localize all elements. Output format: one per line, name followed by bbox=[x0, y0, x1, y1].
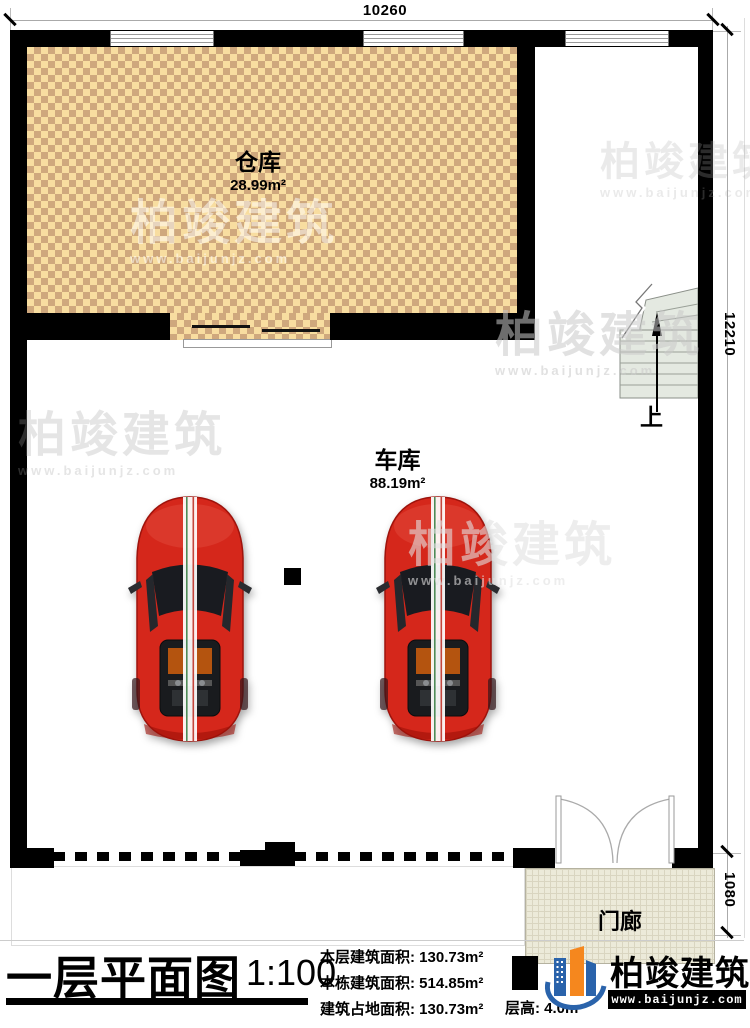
frame-line bbox=[744, 18, 745, 938]
door-sill bbox=[183, 339, 332, 348]
watermark: 柏竣建筑www.baijunjz.com bbox=[18, 412, 226, 477]
warehouse-right-wall bbox=[517, 47, 535, 340]
porch-side-wall bbox=[513, 848, 555, 868]
right-dimension-line bbox=[727, 26, 728, 938]
title-block: 一层平面图 1:100 本层建筑面积: 130.73m² 本栋建筑面积: 514… bbox=[0, 938, 750, 1028]
porch-double-door bbox=[550, 793, 680, 867]
exterior-wall-right bbox=[698, 30, 713, 848]
top-dimension-line bbox=[10, 20, 713, 21]
bottom-wall-corner bbox=[10, 848, 54, 868]
sliding-door-leaf bbox=[262, 329, 320, 332]
garage-pillar bbox=[284, 568, 301, 585]
building-stats: 本层建筑面积: 130.73m² 本栋建筑面积: 514.85m² 建筑占地面积… bbox=[320, 945, 483, 1023]
legend-square bbox=[512, 956, 538, 990]
warehouse-bottom-wall bbox=[27, 313, 170, 340]
window bbox=[363, 31, 464, 46]
warehouse-label: 仓库 28.99m² bbox=[188, 148, 328, 196]
stat-line: 建筑占地面积: 130.73m² bbox=[320, 997, 483, 1023]
car-top-view bbox=[372, 494, 504, 744]
right-dimension-label: 12210 bbox=[721, 312, 738, 356]
garage-label: 车库 88.19m² bbox=[330, 446, 465, 494]
brand-website: www.baijunjz.com bbox=[608, 990, 746, 1009]
garage-opening-dashed-line bbox=[294, 852, 514, 861]
window bbox=[110, 31, 214, 46]
warehouse-bottom-wall bbox=[330, 313, 517, 340]
floor-plan-canvas: 10260 12210 1080 bbox=[0, 0, 750, 1028]
garage-opening-dashed-line bbox=[53, 852, 241, 861]
stat-line: 本层建筑面积: 130.73m² bbox=[320, 945, 483, 971]
title-underline bbox=[6, 998, 308, 1005]
window bbox=[565, 31, 669, 46]
porch-label: 门廊 bbox=[560, 908, 680, 936]
stat-line: 本栋建筑面积: 514.85m² bbox=[320, 971, 483, 997]
brand-logo-icon bbox=[538, 944, 610, 1012]
driveway-apron bbox=[11, 866, 525, 946]
top-dimension-label: 10260 bbox=[330, 2, 440, 19]
brand-name: 柏竣建筑 bbox=[610, 946, 750, 995]
car-top-view bbox=[124, 494, 256, 744]
sliding-door-leaf bbox=[192, 325, 250, 328]
porch-dimension-label: 1080 bbox=[721, 872, 738, 907]
garage-front-column bbox=[265, 842, 295, 866]
exterior-wall-left bbox=[10, 30, 27, 868]
stairs-up-label: 上 bbox=[640, 398, 663, 432]
